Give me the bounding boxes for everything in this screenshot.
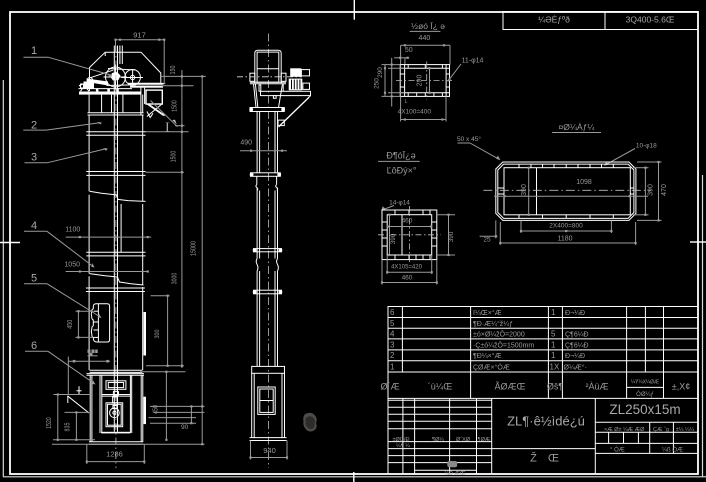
svg-text:Ð¬¼Ð: Ð¬¼Ð bbox=[565, 353, 585, 360]
svg-text:390: 390 bbox=[390, 233, 397, 244]
svg-text:¼ß ÓÆ: ¼ß ÓÆ bbox=[662, 447, 683, 454]
svg-text:11-φ14: 11-φ14 bbox=[462, 58, 484, 65]
svg-text:390: 390 bbox=[648, 184, 655, 196]
svg-text:6: 6 bbox=[31, 340, 37, 352]
svg-text:L: L bbox=[405, 99, 408, 105]
svg-text:ĽôĐý×°: ĽôĐý×° bbox=[387, 166, 417, 176]
svg-text:5: 5 bbox=[31, 273, 37, 285]
svg-text:±ó×Ø¼žŌ=2000: ±ó×Ø¼žŌ=2000 bbox=[473, 331, 525, 339]
svg-text:¶ØÆ: ¶ØÆ bbox=[478, 437, 491, 443]
svg-text:3000: 3000 bbox=[172, 273, 179, 285]
svg-text:Ø¼Æ°·: Ø¼Æ°· bbox=[564, 363, 587, 371]
svg-text:460: 460 bbox=[402, 275, 413, 282]
svg-text:440: 440 bbox=[419, 35, 431, 42]
svg-text:5: 5 bbox=[390, 319, 395, 328]
svg-text:1: 1 bbox=[551, 308, 556, 317]
svg-text:15000: 15000 bbox=[191, 241, 198, 256]
svg-text:¼¶ ¼: ¼¶ ¼ bbox=[396, 444, 410, 450]
svg-text:Ç¶6¼Ð: Ç¶6¼Ð bbox=[565, 332, 589, 339]
svg-text:Ð¬¼Ð: Ð¬¼Ð bbox=[565, 310, 585, 317]
svg-text:6: 6 bbox=[390, 308, 395, 317]
svg-text:290: 290 bbox=[416, 75, 423, 87]
svg-text:4X105=420: 4X105=420 bbox=[391, 265, 423, 271]
svg-text:1180: 1180 bbox=[557, 236, 572, 243]
svg-text:1: 1 bbox=[31, 45, 37, 57]
svg-text:150: 150 bbox=[170, 65, 177, 74]
svg-text:2X400=800: 2X400=800 bbox=[549, 223, 583, 230]
svg-text:470: 470 bbox=[661, 184, 668, 196]
svg-text:2: 2 bbox=[390, 351, 395, 360]
svg-text:390: 390 bbox=[521, 184, 528, 196]
svg-text:1500: 1500 bbox=[171, 151, 178, 163]
svg-text:ÇØÆ×°ÓÆ: ÇØÆ×°ÓÆ bbox=[473, 362, 510, 371]
svg-text:¸¶Ø¼: ¸¶Ø¼ bbox=[430, 437, 444, 443]
svg-text:490: 490 bbox=[240, 140, 252, 147]
svg-text:4: 4 bbox=[31, 220, 37, 232]
svg-text:300: 300 bbox=[155, 329, 161, 339]
svg-text:3Q400-5.6Œ: 3Q400-5.6Œ bbox=[626, 15, 675, 25]
svg-text:14-φ14: 14-φ14 bbox=[389, 200, 410, 207]
svg-text:1: 1 bbox=[551, 351, 556, 360]
svg-text:1098: 1098 bbox=[576, 179, 592, 186]
svg-text:Ž: Ž bbox=[530, 452, 537, 465]
svg-text:Øš¶: Øš¶ bbox=[547, 382, 564, 392]
svg-text:±,X¢: ±,X¢ bbox=[672, 382, 690, 392]
svg-text:ZL¶·ê½ìdé¿ú: ZL¶·ê½ìdé¿ú bbox=[507, 414, 585, 429]
svg-text:1050: 1050 bbox=[64, 262, 80, 269]
svg-text:I¼Œ×°Æ: I¼Œ×°Æ bbox=[473, 309, 502, 317]
svg-text:50: 50 bbox=[405, 47, 413, 54]
svg-text:290: 290 bbox=[377, 67, 384, 78]
svg-text:3: 3 bbox=[31, 152, 37, 164]
svg-text:¼Ð ÆŒ: ¼Ð ÆŒ bbox=[444, 471, 466, 477]
svg-text:1: 1 bbox=[551, 340, 556, 349]
svg-text:250: 250 bbox=[374, 78, 381, 89]
svg-text:ZL250x15m: ZL250x15m bbox=[609, 402, 680, 417]
svg-text:ØˆXØ: ØˆXØ bbox=[456, 437, 471, 443]
svg-text:917: 917 bbox=[133, 31, 146, 40]
svg-text:450: 450 bbox=[67, 320, 74, 329]
svg-text:10-φ18: 10-φ18 bbox=[636, 143, 657, 150]
svg-text:½øó Ī¿ ə: ½øó Ī¿ ə bbox=[411, 21, 445, 31]
svg-text:450: 450 bbox=[153, 405, 160, 414]
svg-text:²ÀùÆ: ²ÀùÆ bbox=[585, 382, 608, 392]
svg-text:Ç¶6¼Ð: Ç¶6¼Ð bbox=[565, 342, 589, 349]
svg-text:5: 5 bbox=[551, 330, 556, 339]
svg-text:390: 390 bbox=[448, 231, 455, 242]
svg-text:¶Ð¼×°Æ: ¶Ð¼×°Æ bbox=[473, 352, 502, 360]
svg-text:940: 940 bbox=[263, 446, 276, 455]
svg-text:4: 4 bbox=[390, 330, 395, 339]
svg-text:° ÓÆ: ° ÓÆ bbox=[610, 447, 625, 454]
svg-text:Œ: Œ bbox=[548, 453, 559, 465]
svg-text:Đ¶óĪ¿ə: Đ¶óĪ¿ə bbox=[386, 151, 415, 161]
svg-text:1100: 1100 bbox=[65, 227, 80, 234]
svg-text:I: I bbox=[165, 120, 170, 135]
svg-text:ÓØ¼ƒ: ÓØ¼ƒ bbox=[636, 391, 654, 398]
svg-text:¶Ð·Æ¼°ž¼ƒ: ¶Ð·Æ¼°ž¼ƒ bbox=[473, 320, 513, 328]
svg-text:±ØÇ(Ð: ±ØÇ(Ð bbox=[392, 437, 409, 443]
svg-text:1520: 1520 bbox=[46, 417, 53, 429]
svg-text:¼Ÿ¼X¼ØÆ: ¼Ÿ¼X¼ØÆ bbox=[631, 379, 659, 386]
svg-text:1286: 1286 bbox=[106, 449, 123, 458]
svg-text:50 x 45°: 50 x 45° bbox=[457, 135, 481, 143]
svg-text:4X100=400: 4X100=400 bbox=[398, 109, 432, 116]
svg-text:Ø´Æ: Ø´Æ bbox=[381, 382, 400, 392]
svg-text:460: 460 bbox=[402, 217, 413, 224]
svg-text:·Ç±ó¼žŌ=1500mm: ·Ç±ó¼žŌ=1500mm bbox=[473, 341, 534, 349]
svg-text:´ù¼Œ: ´ù¼Œ bbox=[428, 382, 453, 392]
svg-text:1X: 1X bbox=[550, 362, 560, 371]
svg-text:835: 835 bbox=[65, 422, 72, 431]
svg-text:1: 1 bbox=[390, 362, 395, 371]
svg-text:3: 3 bbox=[390, 340, 395, 349]
svg-text:1500: 1500 bbox=[172, 100, 179, 112]
svg-text:¼ƏĖƒºð: ¼ƏĖƒºð bbox=[538, 15, 570, 25]
svg-text:ÃØÆŒ: ÃØÆŒ bbox=[494, 382, 525, 392]
svg-text:25: 25 bbox=[483, 237, 491, 244]
svg-text:90: 90 bbox=[181, 424, 189, 431]
svg-text:¤Ø¼Àƒ¼: ¤Ø¼Àƒ¼ bbox=[559, 122, 596, 132]
